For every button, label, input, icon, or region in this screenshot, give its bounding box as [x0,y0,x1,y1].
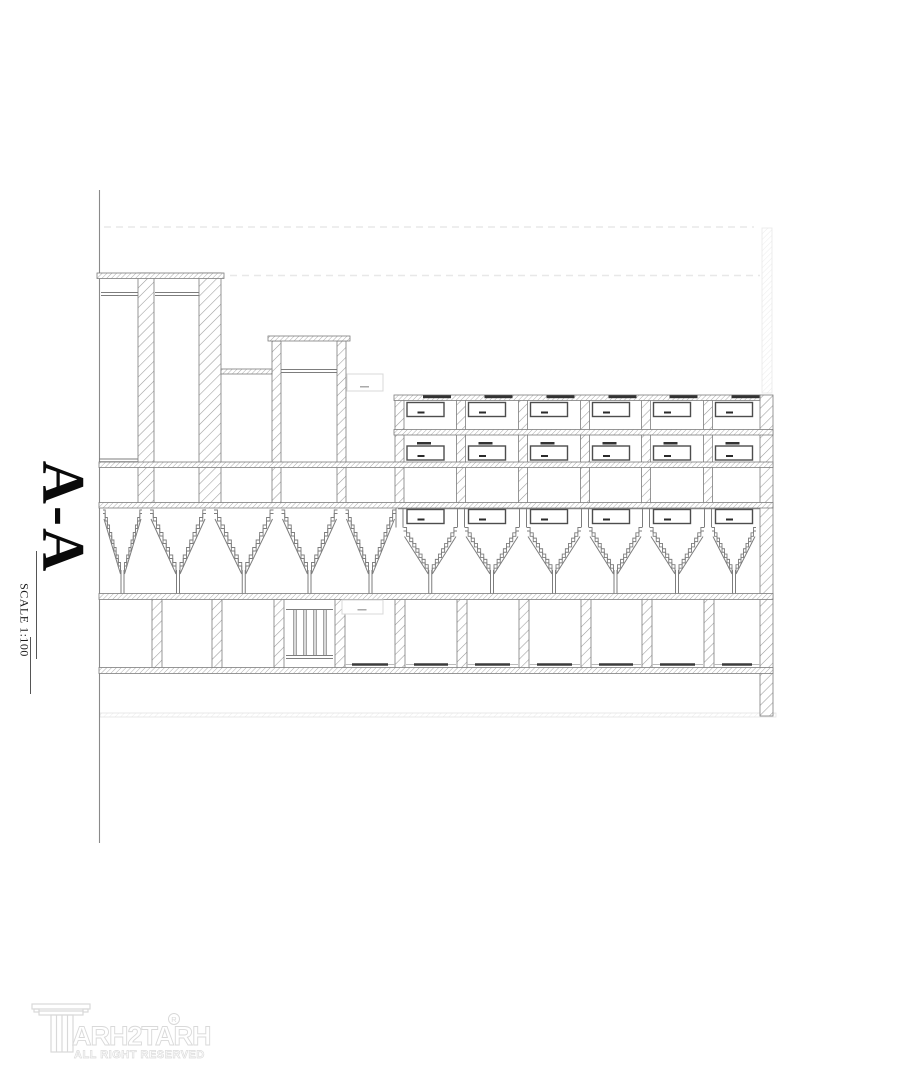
section-title: A-A [29,461,98,574]
registered-mark: R [171,1015,177,1024]
drawing-sheet: A-A SCALE 1:100 ARH2TARH R ALL RIGHT RES… [0,0,910,1080]
brand-text: ARH2TARH [72,1021,211,1051]
tagline-text: ALL RIGHT RESERVED [74,1049,205,1061]
scale-label: SCALE 1:100 [17,583,32,657]
brand-logo: ARH2TARH R ALL RIGHT RESERVED [28,998,218,1068]
section-drawing [0,0,910,1080]
